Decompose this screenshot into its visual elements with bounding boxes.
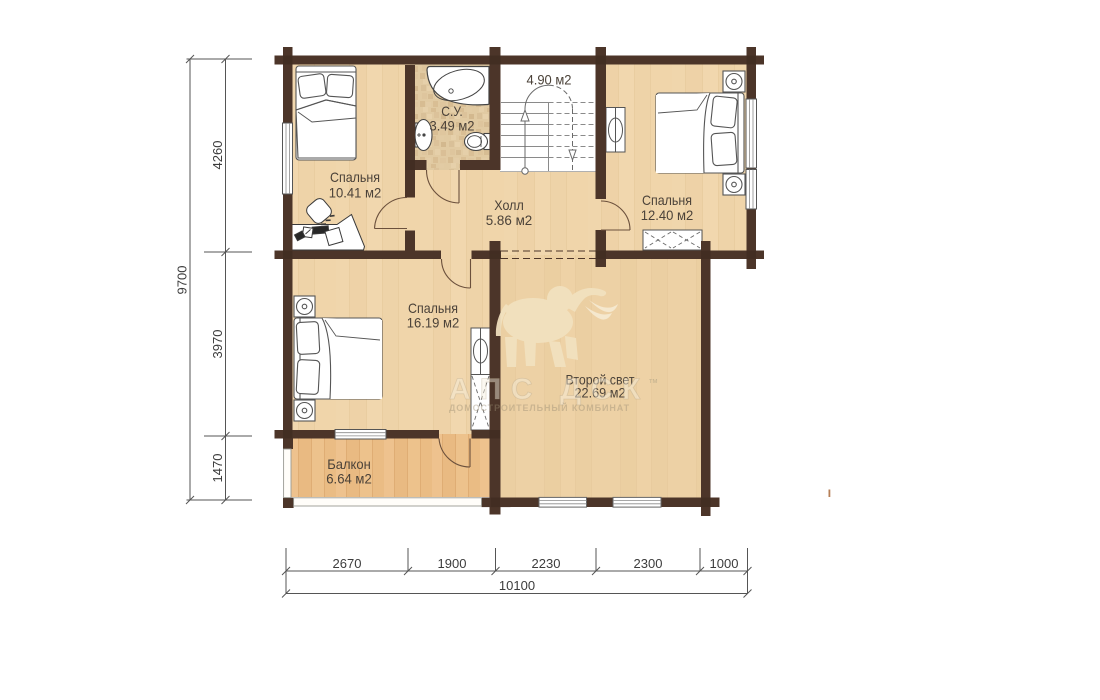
svg-text:10.41 м2: 10.41 м2 <box>329 185 382 201</box>
svg-text:2300: 2300 <box>634 556 663 571</box>
svg-text:Спальня: Спальня <box>330 169 380 185</box>
svg-text:4.90 м2: 4.90 м2 <box>527 72 572 88</box>
svg-text:АПС ДСК: АПС ДСК <box>449 373 650 406</box>
svg-text:2230: 2230 <box>532 556 561 571</box>
svg-text:5.86 м2: 5.86 м2 <box>486 212 533 228</box>
svg-text:9700: 9700 <box>175 266 190 295</box>
svg-text:ДОМОСТРОИТЕЛЬНЫЙ КОМБИНАТ: ДОМОСТРОИТЕЛЬНЫЙ КОМБИНАТ <box>449 402 630 413</box>
svg-text:Спальня: Спальня <box>642 192 692 208</box>
svg-text:3.49 м2: 3.49 м2 <box>430 118 475 134</box>
svg-text:тм: тм <box>649 376 658 385</box>
svg-text:6.64 м2: 6.64 м2 <box>326 471 372 487</box>
svg-text:4260: 4260 <box>210 141 225 170</box>
svg-text:3970: 3970 <box>210 330 225 359</box>
svg-text:16.19 м2: 16.19 м2 <box>407 315 460 331</box>
svg-text:1000: 1000 <box>710 556 739 571</box>
svg-text:1470: 1470 <box>210 454 225 483</box>
svg-text:10100: 10100 <box>499 578 535 593</box>
svg-text:12.40 м2: 12.40 м2 <box>641 207 694 223</box>
svg-text:1900: 1900 <box>438 556 467 571</box>
svg-text:Холл: Холл <box>494 197 524 213</box>
svg-text:2670: 2670 <box>333 556 362 571</box>
